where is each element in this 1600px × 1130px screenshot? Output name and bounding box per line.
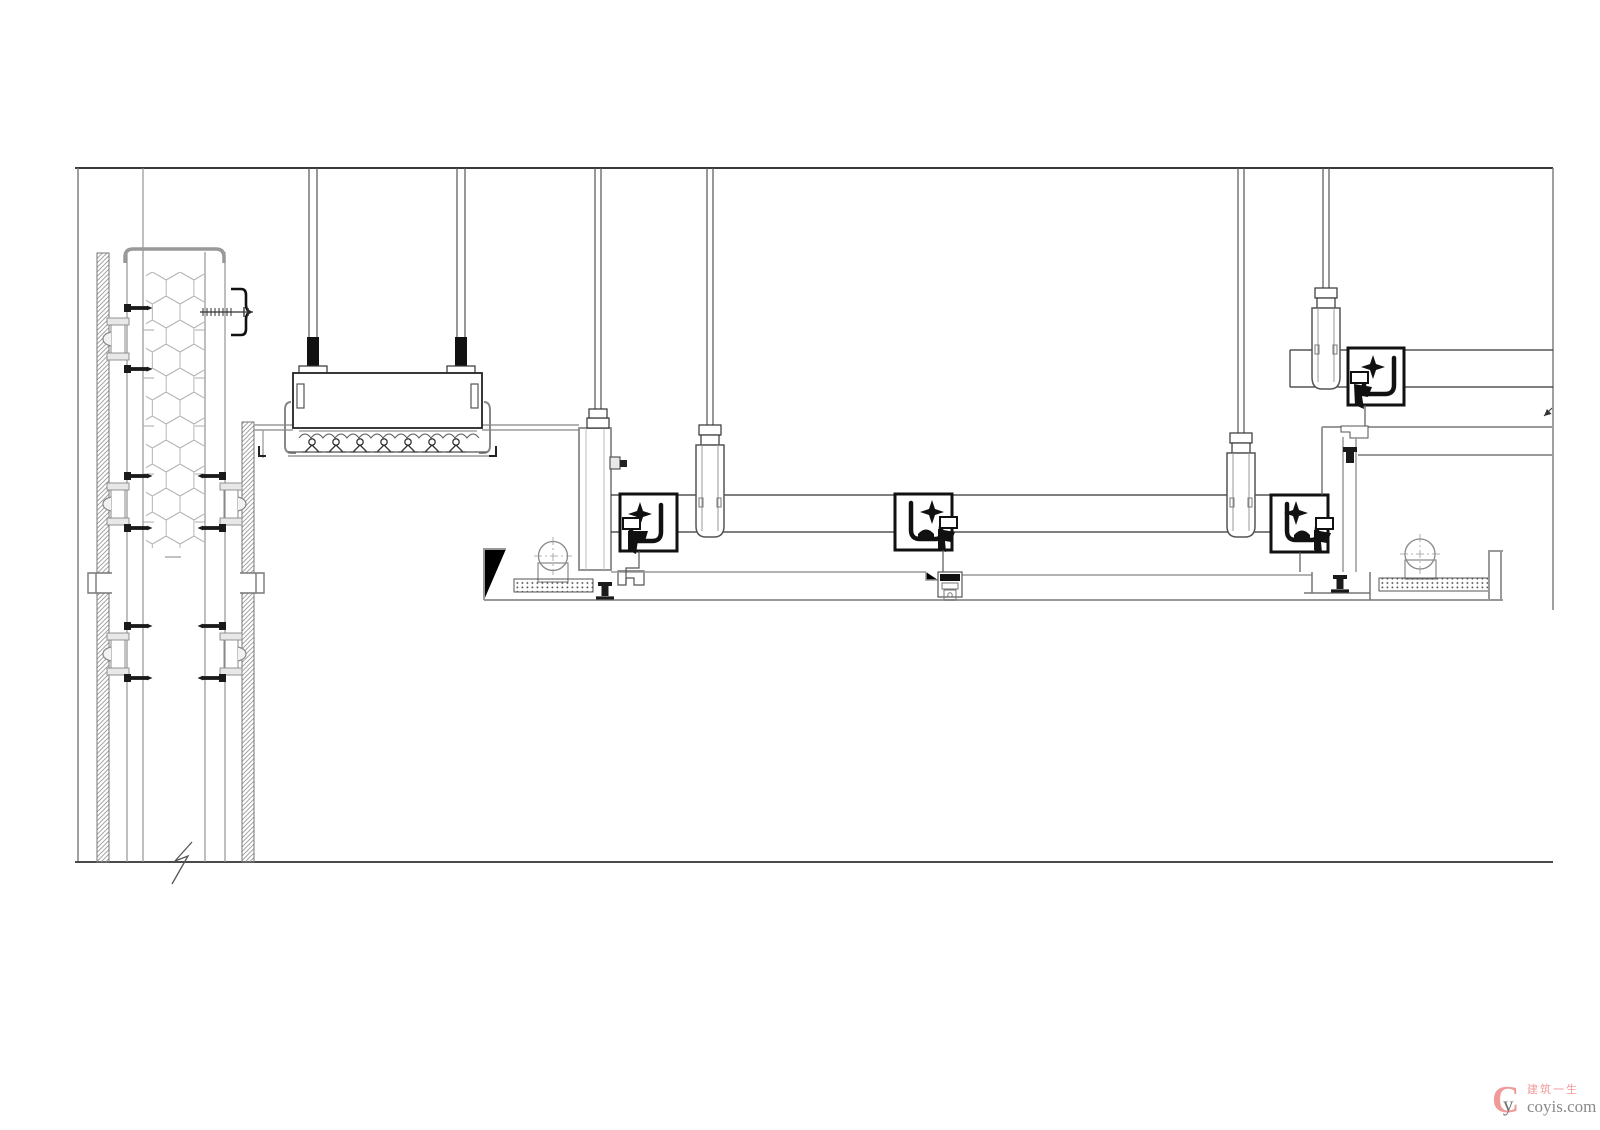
recess-right-upstand — [1489, 551, 1503, 600]
joint-notch-left — [88, 573, 112, 593]
panel-joint-connector — [938, 572, 962, 600]
hanger-bracket-mid-right — [1227, 168, 1255, 537]
watermark-site: coyis.com — [1527, 1097, 1596, 1117]
channel-bolt — [1343, 447, 1357, 463]
step-trim — [1341, 426, 1368, 438]
wall-bracket — [103, 318, 129, 360]
panel-top-cap — [125, 249, 224, 263]
watermark: C y 建筑一生 coyis.com — [1492, 1084, 1596, 1120]
recess-left-upstand — [484, 549, 506, 600]
watermark-tagline: 建筑一生 — [1527, 1084, 1596, 1097]
louver-grille — [259, 431, 497, 456]
threaded-hanger-rod — [447, 168, 475, 395]
wall-bracket — [103, 483, 129, 525]
structural-slab-and-borders — [75, 168, 1553, 862]
linear-diffuser-assembly — [254, 168, 579, 458]
ceiling-line-left — [254, 425, 293, 430]
ceiling-section-drawing — [0, 0, 1600, 1130]
joint-notch-right — [240, 573, 264, 593]
right-cladding-panel — [242, 422, 254, 862]
diffuser-housing — [293, 373, 482, 428]
wall-bracket — [103, 633, 129, 675]
honeycomb-core — [146, 272, 204, 548]
panel-surface-left — [611, 572, 938, 580]
threaded-hanger-rod — [299, 168, 327, 395]
channel-bolt — [610, 457, 620, 469]
insulation-strip — [514, 579, 593, 592]
logo-y-glyph: y — [1503, 1092, 1514, 1117]
anchor-screw — [200, 307, 253, 317]
suspension-clip-4 — [1348, 348, 1404, 409]
suspension-clip-2 — [895, 494, 957, 572]
panel-step-trim — [618, 571, 644, 585]
ceiling-line-right — [482, 425, 579, 430]
right-panel-foot — [1304, 572, 1370, 600]
hanger-bracket-mid-left — [696, 168, 724, 537]
hanger-rod — [595, 168, 601, 418]
insulation-strip — [1379, 578, 1489, 591]
coyis-logo: C y — [1492, 1084, 1524, 1120]
suspension-clip-3 — [1271, 495, 1333, 572]
wall-assembly — [88, 168, 264, 862]
leader-arrow — [1544, 408, 1552, 416]
ceiling-detail-drawing-page: C y 建筑一生 coyis.com — [0, 0, 1600, 1130]
hanger-bracket-upper — [1312, 168, 1340, 389]
conduit-centerlines — [1400, 534, 1440, 574]
fixing-bolt — [596, 582, 614, 598]
conduit-centerlines — [534, 537, 572, 575]
